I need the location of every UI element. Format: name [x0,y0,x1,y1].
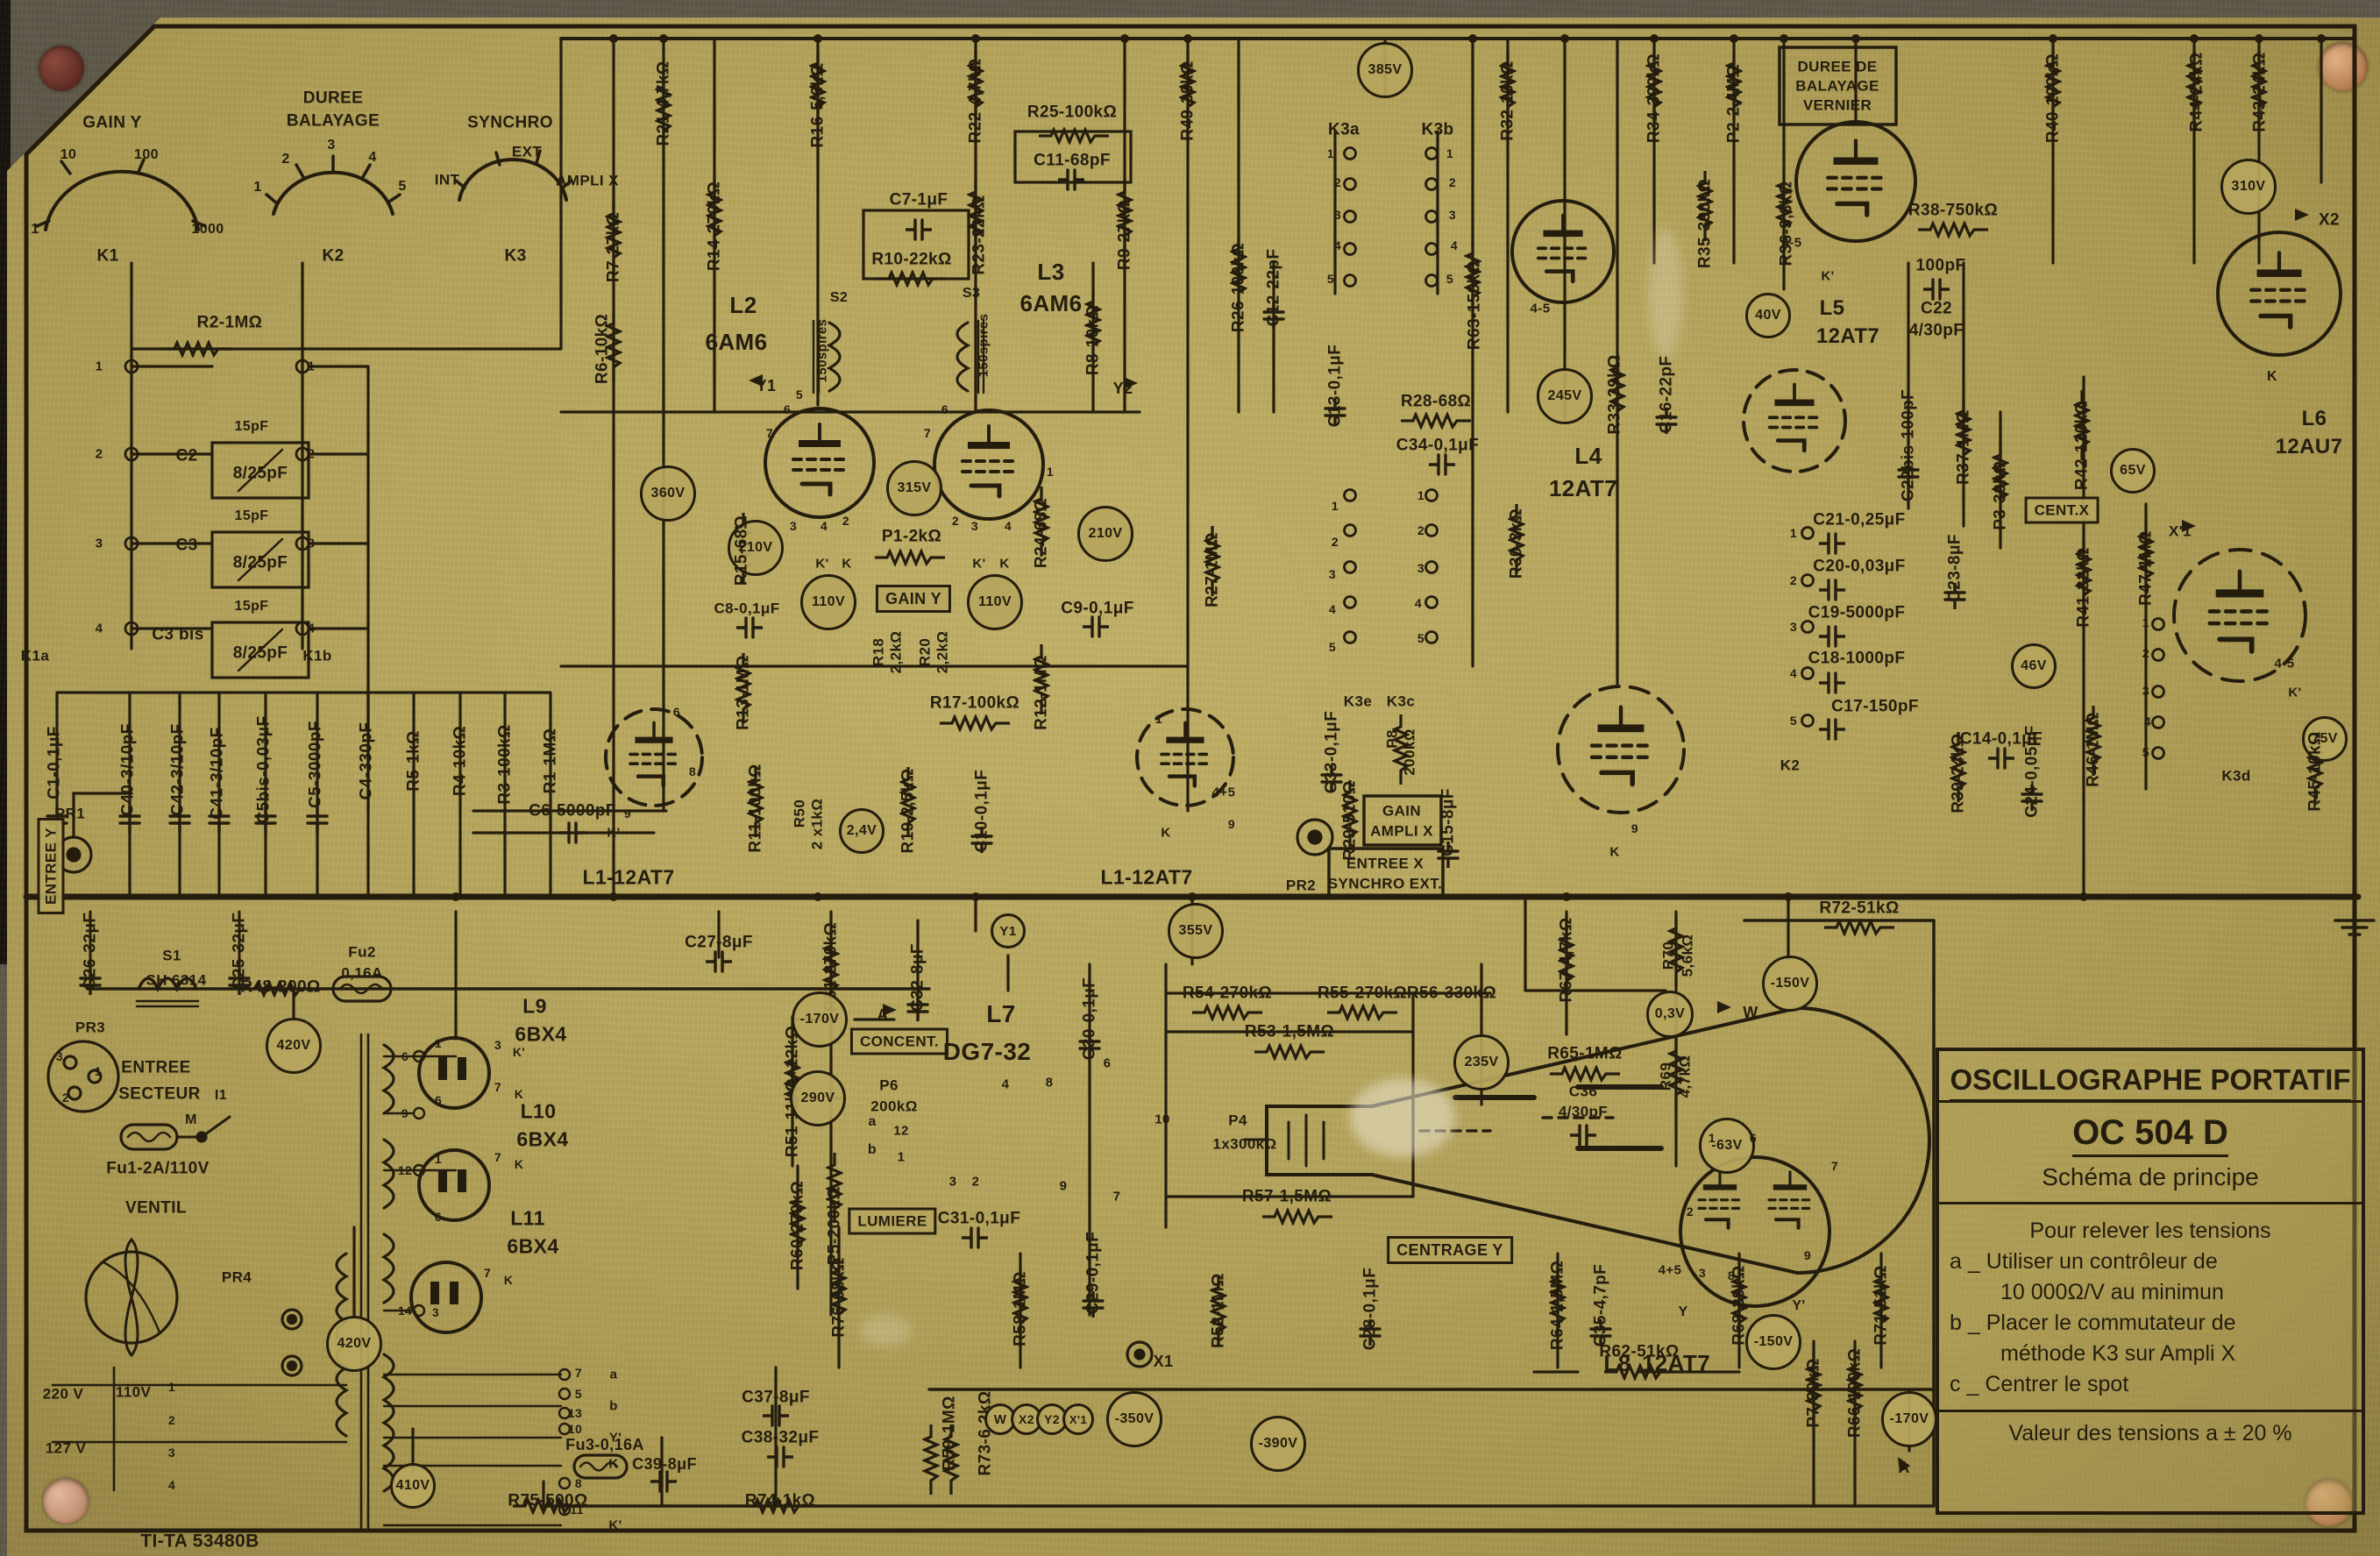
component-label: 2 [308,448,316,461]
component-label: 4 [821,520,828,532]
component-label: 7 [494,1151,501,1163]
component-label: R69 [1659,1062,1673,1091]
instruction-b2: méthode K3 sur Ampli X [1950,1341,2351,1367]
component-label: R58-1MΩ [1012,1271,1029,1346]
component-label: L6 [2302,409,2327,430]
component-label: S2 [830,291,848,305]
component-label: R46-1MΩ [2085,712,2102,787]
component-label: 4 [1002,1078,1010,1091]
component-label: K3c [1387,694,1415,709]
component-label: R34-390kΩ [1646,53,1663,143]
voltage-callout: 0,3V [1646,991,1694,1038]
component-label: C22bis-100pF [1900,389,1917,501]
component-label: 4/30pF [1909,323,1964,339]
component-label: K [2267,370,2277,384]
component-label: R64-1,5MΩ [1550,1261,1567,1350]
component-label: K [1609,846,1619,859]
component-label: X2 [2319,212,2340,229]
component-label: 8 [689,765,696,778]
component-label: R13-1MΩ [735,655,752,730]
component-label: 8/25pF [233,465,288,482]
component-label: 10 [1154,1113,1170,1126]
component-label: K' [607,827,620,840]
component-label: L2 [729,294,757,316]
component-label: R29-510Ω [1342,780,1359,860]
component-label: 2 [1332,536,1339,548]
component-label: 2 [168,1414,175,1426]
component-label: 4 [1415,597,1422,609]
component-label: R66-100kΩ [1847,1348,1864,1438]
component-label: R62-51kΩ [1599,1344,1679,1361]
component-label: 6 [673,706,680,718]
component-label: C33-0,1μF [1324,711,1340,793]
component-label: R65-1MΩ [1547,1046,1623,1062]
component-label: 3 [2142,685,2149,697]
component-label: R53-1,5MΩ [1245,1024,1334,1041]
component-label: EXT [512,145,542,160]
component-label: A [877,1007,888,1023]
component-label: 2 x1kΩ [810,799,825,850]
component-label: 3 [168,1446,175,1459]
component-label: K2 [1780,758,1801,773]
component-label: R16-5,6kΩ [810,63,827,148]
voltage-callout: 46V [2011,643,2057,689]
component-label: 1 [1446,147,1453,160]
component-label: 3 [56,1050,63,1062]
component-label: C15-8μF [1440,788,1457,856]
component-label: R67-4,7kΩ [1559,918,1575,1003]
component-label: 9 [624,807,631,820]
component-label: C39-8μF [632,1456,697,1472]
component-label: INT [435,173,460,188]
component-label: P4 [1228,1113,1247,1128]
component-label: 2,2kΩ [889,631,904,674]
component-label: R8-10kΩ [1085,305,1102,375]
component-label: K3 [504,248,526,265]
component-label: 10 [60,148,77,162]
component-label: K3d [2221,769,2250,784]
component-label: K [515,1088,524,1100]
component-label: R20 [918,638,933,666]
component-label: 1000 [191,223,224,237]
component-label: 5 [796,388,803,401]
component-label: L1-12AT7 [1100,868,1192,888]
component-label: C31-0,1μF [938,1211,1020,1227]
voltage-callout: 385V [1357,42,1413,98]
component-label: 4+5 [1659,1264,1682,1277]
component-label: C10-0,1μF [974,770,991,852]
component-label: Fu2 [348,945,375,960]
component-label: R14-270kΩ [707,181,723,271]
component-label: R76-68kΩ [831,1257,848,1337]
component-label: 4 [1334,239,1341,252]
component-label: AMPLI X [1370,824,1433,839]
component-label: R56-330kΩ [1407,985,1496,1002]
component-label: 6BX4 [516,1130,568,1150]
title-block-instructions: Pour relever les tensions a _ Utiliser u… [1939,1204,2362,1412]
component-label: 10 [568,1423,582,1435]
component-label: 4/30pF [1559,1105,1608,1119]
component-label: C30-0,1μF [1082,977,1098,1060]
component-label: 3 [790,520,797,532]
component-label: P7-30kΩ [1806,1358,1822,1427]
component-label: 6BX4 [507,1237,558,1257]
component-label: R11-100kΩ [748,764,764,852]
component-label: C34-0,1μF [1396,437,1479,454]
component-label: K3a [1328,122,1360,139]
component-label: 3 [1334,209,1341,221]
component-label: 7 [484,1267,491,1279]
component-label: R4-10kΩ [452,726,469,796]
component-label: b [868,1143,877,1157]
component-label: 4,7kΩ [1678,1055,1693,1098]
component-label: 8 [575,1477,582,1489]
component-label: 1 [168,1381,175,1393]
component-label: C42-3/10pF [170,723,187,815]
voltage-callout: 420V [326,1316,382,1372]
voltage-callout: -63V [1699,1118,1755,1174]
component-label: K1b [302,649,331,664]
component-label: 7 [924,427,931,439]
component-label: 3 [308,537,316,551]
component-label: R60-270kΩ [790,1181,806,1270]
panel-label: CONCENT. [850,1028,948,1055]
component-label: C18-1000pF [1808,650,1906,667]
component-label: K' [972,558,985,571]
component-label: R40-100kΩ [2045,53,2062,143]
component-label: C22 [1921,301,1952,317]
component-label: R54-270kΩ [1183,985,1272,1002]
component-label: C4-330pF [359,722,375,800]
component-label: 7 [494,1081,501,1093]
component-label: 2 [1790,574,1797,586]
voltage-callout: 110V [967,574,1023,630]
component-label: R42-120kΩ [2074,401,2091,490]
component-label: a [868,1115,876,1129]
component-label: P8 [1385,729,1400,749]
component-label: C3 bis [152,627,203,643]
component-label: 4+5 [1212,786,1236,799]
component-label: 4 [168,1479,175,1491]
component-label: 1 [1417,489,1424,501]
component-label: R23-22kΩ [971,195,988,274]
component-label: 12 [893,1125,909,1138]
component-label: X1 [1154,1354,1174,1369]
component-label: 14 [398,1304,412,1317]
component-label: 5,6kΩ [1680,934,1695,977]
component-label: R37-1MΩ [1956,409,1972,485]
component-label: R18 [871,638,886,666]
component-label: K [999,558,1009,571]
component-label: S3 [963,287,980,301]
component-label: P1-2kΩ [882,529,941,545]
component-label: C40-3/10pF [120,723,137,815]
instruction-c: c _ Centrer le spot [1950,1372,2351,1397]
component-label: 150spires [816,319,829,383]
component-label: C1-0,1μF [46,726,63,799]
component-label: 9 [1060,1180,1068,1193]
component-label: K' [815,558,828,571]
component-label: 8 [1728,1269,1735,1282]
component-label: C21-0,25μF [1813,512,1905,529]
component-label: P6 [879,1078,899,1093]
component-label: 3 [1790,621,1797,633]
component-label: 2 [972,1176,980,1189]
component-label: W [1743,1005,1758,1020]
component-label: 3 [1699,1267,1706,1279]
component-label: R36-3,3kΩ [1779,181,1795,266]
component-label: R47-1MΩ [2138,530,2155,606]
component-label: R39-24kΩ [1950,733,1967,813]
component-label: SH 6314 [146,973,207,988]
component-label: K' [608,1519,622,1532]
component-label: 127 V [46,1441,86,1456]
component-label: Y2 [1113,380,1133,396]
component-label: 1 [1709,1132,1716,1144]
component-label: R15-68Ω [734,515,750,586]
component-label: R33-39kΩ [1607,354,1623,434]
component-label: 1x300kΩ [1212,1137,1276,1152]
component-label: 6 [1750,1132,1757,1144]
component-label: 3 [971,520,978,532]
voltage-callout: 2,4V [839,808,885,854]
component-label: R19-2,5kΩ [900,769,917,854]
voltage-callout: -150V [1745,1314,1801,1370]
component-label: K2 [322,248,344,265]
component-label: 6 [435,1094,442,1106]
component-label: R75-500Ω [508,1493,587,1510]
voltage-callout: -170V [1881,1391,1937,1447]
component-label: C7-1μF [890,192,948,209]
voltage-callout: 110V [800,574,856,630]
component-label: C13-0,1μF [1327,345,1344,427]
component-label: C9-0,1μF [1061,600,1133,617]
component-label: 1 [435,1037,442,1049]
component-label: 3 [494,1039,501,1051]
component-label: VENTIL [125,1200,187,1217]
title-block-subtitle: Schéma de principe [1939,1155,2362,1204]
component-label: 5 [1327,273,1334,285]
voltage-callout: 235V [1453,1034,1510,1091]
component-label: K [608,1458,618,1471]
component-label: C36 [1569,1084,1597,1099]
component-label: 9 [1804,1249,1811,1261]
component-label: PR2 [1286,878,1316,893]
component-label: 5 [2142,746,2149,758]
component-label: R1-1MΩ [543,728,559,794]
component-label: 6 [401,1050,409,1062]
instructions-heading: Pour relever les tensions [1950,1219,2351,1244]
component-label: 1 [2142,616,2149,629]
component-label: R50 [792,799,807,828]
component-label: 3 [327,139,335,153]
voltage-callout: Y1 [991,913,1026,949]
voltage-callout: 355V [1168,903,1224,959]
component-label: 6BX4 [515,1025,566,1045]
component-label: 8/25pF [233,555,288,572]
component-label: R25-100kΩ [1027,104,1117,121]
component-label: 110V [116,1385,151,1400]
voltage-callout: 210V [1077,506,1133,562]
component-label: C24-0,05μF [2024,725,2041,817]
component-label: 1 [898,1151,906,1164]
component-label: R27-1MΩ [1204,532,1221,607]
component-label: R35-390kΩ [1697,179,1714,268]
component-label: 220 V [43,1387,83,1402]
voltage-callout: 40V [1745,293,1791,338]
component-label: 6 [435,1211,442,1223]
component-label: R45-10kΩ [2307,731,2324,811]
component-label: 4 [368,151,376,165]
component-label: R28-68Ω [1401,394,1471,410]
panel-label: ENTREE Y [38,818,65,914]
component-label: C27-8μF [685,934,753,951]
component-label: VERNIER [1803,98,1872,113]
component-label: 1 [95,1065,102,1077]
panel-label: LUMIERE [848,1208,936,1235]
component-label: 4-5 [1531,302,1551,316]
component-label: M [185,1113,197,1127]
component-label: X'1 [2169,524,2192,539]
component-label: GAIN Y [82,115,142,131]
component-label: 1 [1332,500,1339,512]
component-label: 4 [96,622,103,636]
component-label: 4 [308,622,316,636]
component-label: R5-1kΩ [406,730,423,791]
voltage-callout: X'1 [1062,1403,1094,1435]
component-label: 3 [1449,209,1456,221]
component-label: 2 [1334,176,1341,188]
component-label: 13 [568,1407,582,1419]
component-label: 200kΩ [870,1099,917,1114]
component-label: K1 [96,248,118,265]
component-label: I1 [215,1089,227,1103]
title-block-title: OSCILLOGRAPHE PORTATIF [1939,1051,2362,1103]
component-label: R21-4,7kΩ [656,61,672,146]
component-label: R43-24kΩ [2252,52,2269,131]
component-label: 3 [1329,568,1336,580]
component-label: PR4 [222,1270,252,1285]
component-label: 1 [1327,147,1334,160]
component-label: 12AU7 [2276,437,2343,458]
component-label: S1 [162,949,181,963]
component-label: b [609,1400,618,1413]
component-label: 1 [1155,713,1162,725]
component-label: C28-0,1μF [1362,1268,1379,1350]
voltage-callout: 65V [2110,448,2156,494]
component-label: K' [2288,686,2301,700]
component-label: 5 [1790,714,1797,727]
component-label: SYNCHRO EXT. [1328,877,1442,892]
component-label: R17-100kΩ [930,695,1019,712]
component-label: C23-8μF [1947,534,1964,602]
component-label: 0,16A [341,966,382,981]
voltage-callout: -150V [1762,956,1818,1012]
component-label: C2 [175,448,197,465]
component-label: 1 [1790,527,1797,539]
component-label: BALAYAGE [1795,79,1879,94]
component-label: 7 [1113,1190,1121,1204]
component-label: A [1898,1460,1909,1475]
component-label: 5 [1446,273,1453,285]
component-label: 6AM6 [1020,292,1083,315]
component-label: R22-4,7kΩ [968,59,984,144]
component-label: 12AT7 [1549,477,1617,500]
component-label: R10-22kΩ [871,252,951,268]
component-label: K' [1821,270,1834,283]
component-label: 6 [1104,1057,1112,1070]
component-label: C35-4,7pF [1593,1264,1609,1346]
component-label: Fu3-0,16A [565,1437,644,1453]
title-block-model: OC 504 D [1939,1103,2362,1155]
component-label: 7 [575,1367,582,1379]
component-label: 4 [1329,603,1336,615]
voltage-callout: -350V [1106,1391,1162,1447]
component-label: 9 [1228,818,1235,830]
component-label: C12-22pF [1266,249,1282,327]
voltage-callout: 420V [266,1018,322,1074]
component-label: P2-2,4MΩ [1726,64,1743,143]
voltage-callout: 360V [640,465,696,522]
component-label: 6AM6 [706,330,768,353]
component-label: P5-200kΩ [827,1186,843,1265]
component-label: ENTREE [121,1060,190,1076]
component-label: K' [513,1046,525,1058]
component-label: L1-12AT7 [582,868,674,888]
component-label: 2 [842,515,849,527]
component-label: C32-8μF [910,943,927,1012]
component-label: 5 [1417,632,1424,644]
component-label: C38-32μF [742,1430,820,1446]
component-label: 4 [1790,667,1797,679]
component-label: 6 [784,403,791,416]
schematic-photo: { "title_block": { "title": "OSCILLOGRAP… [0,0,2380,1556]
component-label: R30-3kΩ [1509,508,1525,579]
component-label: K [1161,827,1170,840]
component-label: 12 [398,1164,412,1176]
component-label: 3 [96,537,103,551]
component-label: K [515,1158,524,1170]
component-label: 9 [1631,822,1638,835]
component-label: Y1 [757,378,777,394]
component-label: 2 [2142,647,2149,659]
component-label: DUREE [303,90,364,107]
component-label: C3 [175,537,197,554]
component-label: R72-51kΩ [1819,900,1899,917]
component-label: PR3 [75,1020,105,1035]
component-label: 6 [941,403,948,416]
component-label: 1 [1047,465,1054,478]
component-label: R74-1kΩ [745,1493,815,1510]
component-label: C16-22pF [1659,356,1675,434]
component-label: R32-10kΩ [1500,60,1517,140]
component-label: 2 [1687,1205,1694,1218]
component-label: 5 [575,1388,582,1400]
component-label: R70 [1661,941,1676,970]
component-label: 150spires [977,314,991,378]
component-label: R73-6,2kΩ [977,1391,994,1476]
component-label: R57-1,5MΩ [1242,1189,1332,1205]
component-label: 8 [1046,1076,1054,1090]
component-label: 5 [398,180,406,194]
component-label: P3-30kΩ [1993,460,2009,529]
component-label: Fu1-2A/110V [106,1161,209,1177]
component-label: C20-0,03μF [1813,558,1905,575]
voltage-callout: 290V [790,1070,846,1126]
component-label: 3 [1417,562,1424,574]
component-label: 5 [1329,641,1336,653]
component-label: K [504,1274,514,1286]
